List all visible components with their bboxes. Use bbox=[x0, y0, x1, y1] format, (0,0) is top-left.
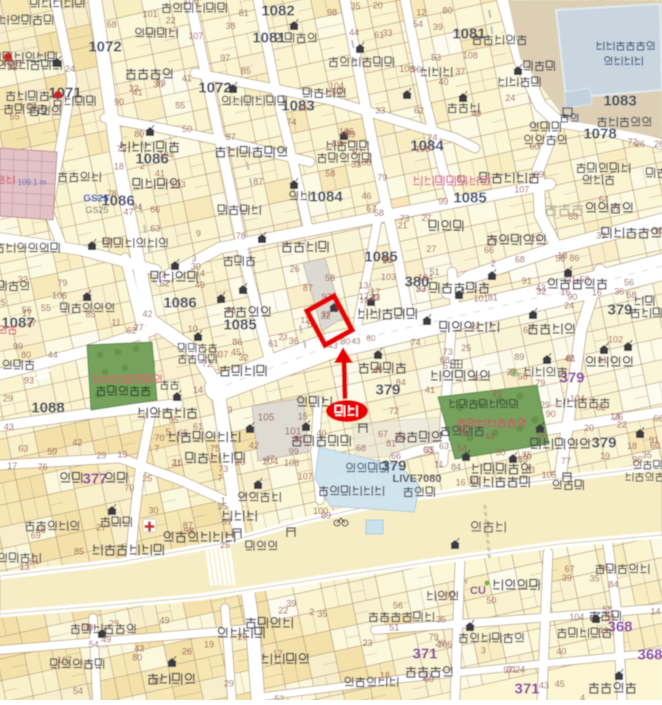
svg-text:74: 74 bbox=[287, 117, 297, 127]
svg-text:76: 76 bbox=[601, 566, 611, 576]
svg-text:45: 45 bbox=[231, 347, 241, 357]
svg-text:73: 73 bbox=[400, 214, 410, 224]
svg-text:25: 25 bbox=[461, 343, 471, 353]
svg-text:18: 18 bbox=[380, 671, 390, 681]
svg-text:99: 99 bbox=[13, 342, 23, 352]
svg-text:68: 68 bbox=[35, 525, 45, 535]
svg-text:18: 18 bbox=[627, 441, 637, 451]
svg-text:61: 61 bbox=[268, 339, 278, 349]
svg-text:53: 53 bbox=[431, 53, 441, 63]
svg-text:49: 49 bbox=[195, 280, 205, 290]
svg-text:50: 50 bbox=[445, 590, 455, 600]
svg-text:31: 31 bbox=[507, 665, 517, 675]
svg-text:73: 73 bbox=[116, 144, 126, 154]
svg-text:83: 83 bbox=[7, 62, 17, 72]
svg-text:72: 72 bbox=[389, 406, 399, 416]
svg-text:25: 25 bbox=[0, 297, 6, 307]
svg-text:9: 9 bbox=[196, 228, 201, 238]
svg-text:35: 35 bbox=[642, 450, 652, 460]
svg-text:106: 106 bbox=[437, 639, 452, 649]
svg-text:20: 20 bbox=[237, 632, 247, 642]
svg-text:98: 98 bbox=[327, 7, 337, 17]
svg-text:64: 64 bbox=[599, 195, 609, 205]
svg-text:75: 75 bbox=[488, 234, 498, 244]
svg-text:GS25: GS25 bbox=[85, 205, 108, 215]
svg-text:34: 34 bbox=[382, 256, 392, 266]
svg-text:33: 33 bbox=[351, 160, 361, 170]
svg-text:82: 82 bbox=[596, 403, 606, 413]
svg-text:1072: 1072 bbox=[88, 38, 121, 55]
svg-text:105: 105 bbox=[542, 470, 557, 480]
svg-text:80: 80 bbox=[442, 6, 452, 16]
svg-text:1072: 1072 bbox=[198, 79, 231, 96]
svg-text:16: 16 bbox=[456, 477, 466, 487]
svg-text:60: 60 bbox=[529, 142, 539, 152]
svg-text:78: 78 bbox=[236, 231, 246, 241]
svg-text:80: 80 bbox=[134, 129, 144, 139]
svg-text:32: 32 bbox=[18, 275, 28, 285]
svg-text:84: 84 bbox=[608, 579, 618, 589]
svg-text:99: 99 bbox=[438, 197, 448, 207]
svg-text:22: 22 bbox=[278, 605, 288, 615]
svg-text:66: 66 bbox=[653, 414, 662, 424]
svg-text:105: 105 bbox=[258, 413, 275, 424]
svg-text:101: 101 bbox=[143, 9, 158, 19]
svg-text:81: 81 bbox=[456, 174, 466, 184]
svg-text:55: 55 bbox=[175, 101, 185, 111]
svg-text:32: 32 bbox=[322, 310, 331, 319]
svg-text:27: 27 bbox=[506, 367, 516, 377]
svg-text:12: 12 bbox=[416, 8, 426, 18]
svg-text:7: 7 bbox=[473, 285, 478, 295]
svg-text:61: 61 bbox=[29, 556, 39, 566]
svg-text:2: 2 bbox=[140, 161, 145, 171]
svg-text:82: 82 bbox=[332, 138, 342, 148]
svg-text:63: 63 bbox=[150, 224, 160, 234]
svg-text:49: 49 bbox=[160, 615, 170, 625]
svg-text:57: 57 bbox=[222, 517, 232, 527]
svg-text:107: 107 bbox=[298, 471, 313, 481]
svg-text:93: 93 bbox=[24, 375, 34, 385]
svg-text:23: 23 bbox=[279, 333, 288, 342]
svg-text:68: 68 bbox=[107, 20, 117, 30]
svg-text:79: 79 bbox=[377, 173, 387, 183]
svg-text:68: 68 bbox=[356, 443, 366, 453]
svg-text:87: 87 bbox=[253, 177, 263, 187]
svg-text:81: 81 bbox=[598, 355, 608, 365]
svg-text:66: 66 bbox=[537, 430, 547, 440]
svg-text:368: 368 bbox=[637, 646, 662, 663]
svg-text:54: 54 bbox=[457, 444, 467, 454]
svg-text:41: 41 bbox=[425, 385, 435, 395]
svg-text:18: 18 bbox=[114, 162, 124, 172]
svg-text:60: 60 bbox=[523, 325, 533, 335]
svg-text:44: 44 bbox=[48, 350, 58, 360]
svg-text:44: 44 bbox=[485, 432, 495, 442]
svg-text:GS25: GS25 bbox=[83, 194, 109, 205]
svg-text:66: 66 bbox=[150, 204, 160, 214]
svg-text:57: 57 bbox=[443, 361, 453, 371]
svg-text:58: 58 bbox=[517, 372, 527, 382]
svg-text:39: 39 bbox=[562, 573, 572, 583]
svg-text:39: 39 bbox=[534, 169, 544, 179]
svg-text:29: 29 bbox=[96, 451, 106, 461]
svg-text:104: 104 bbox=[262, 457, 279, 468]
svg-text:38: 38 bbox=[225, 21, 235, 31]
svg-text:90: 90 bbox=[114, 97, 124, 107]
svg-text:65: 65 bbox=[178, 428, 188, 438]
svg-text:35: 35 bbox=[590, 574, 600, 584]
svg-text:1081: 1081 bbox=[252, 29, 285, 46]
svg-text:79: 79 bbox=[57, 278, 67, 288]
svg-text:80: 80 bbox=[132, 652, 142, 662]
svg-text:7: 7 bbox=[217, 473, 222, 483]
svg-text:CU: CU bbox=[470, 585, 486, 597]
svg-text:14: 14 bbox=[651, 606, 661, 616]
svg-text:29: 29 bbox=[224, 679, 234, 689]
svg-text:49: 49 bbox=[492, 389, 502, 399]
svg-text:42: 42 bbox=[249, 441, 259, 451]
svg-text:62: 62 bbox=[414, 106, 424, 116]
svg-text:72: 72 bbox=[202, 359, 212, 369]
svg-text:36: 36 bbox=[289, 336, 299, 346]
svg-text:1085: 1085 bbox=[364, 248, 397, 265]
svg-text:1078: 1078 bbox=[583, 125, 616, 142]
svg-text:26: 26 bbox=[220, 540, 230, 550]
svg-text:99: 99 bbox=[83, 623, 93, 633]
svg-text:50: 50 bbox=[182, 124, 192, 134]
svg-text:19: 19 bbox=[600, 451, 610, 461]
svg-text:60: 60 bbox=[103, 236, 113, 246]
svg-text:80: 80 bbox=[367, 334, 376, 343]
svg-text:37: 37 bbox=[455, 66, 465, 76]
svg-text:16: 16 bbox=[592, 288, 602, 298]
svg-text:100: 100 bbox=[313, 506, 328, 516]
svg-text:13: 13 bbox=[20, 562, 30, 572]
svg-text:107: 107 bbox=[188, 31, 203, 41]
svg-text:27: 27 bbox=[426, 244, 436, 254]
svg-text:69: 69 bbox=[424, 674, 434, 684]
svg-text:94: 94 bbox=[132, 202, 142, 212]
svg-text:44: 44 bbox=[349, 27, 359, 37]
svg-text:21: 21 bbox=[171, 458, 181, 468]
svg-text:91: 91 bbox=[522, 276, 532, 286]
svg-text:18: 18 bbox=[457, 424, 467, 434]
svg-text:32: 32 bbox=[537, 287, 547, 297]
svg-text:27: 27 bbox=[26, 318, 36, 328]
svg-text:1085: 1085 bbox=[453, 189, 486, 206]
svg-text:81: 81 bbox=[566, 353, 576, 363]
svg-text:1088: 1088 bbox=[31, 399, 64, 416]
svg-text:43: 43 bbox=[4, 422, 14, 432]
svg-text:51: 51 bbox=[389, 622, 399, 632]
svg-text:52: 52 bbox=[274, 694, 284, 700]
svg-text:39: 39 bbox=[433, 22, 443, 32]
svg-text:54: 54 bbox=[413, 19, 423, 29]
svg-text:85: 85 bbox=[85, 310, 95, 320]
svg-text:84: 84 bbox=[396, 378, 406, 388]
svg-text:1082: 1082 bbox=[261, 2, 294, 19]
svg-text:29: 29 bbox=[540, 400, 550, 410]
svg-text:24: 24 bbox=[65, 64, 75, 74]
svg-text:45: 45 bbox=[555, 679, 565, 689]
svg-text:46: 46 bbox=[361, 191, 371, 201]
svg-text:2: 2 bbox=[309, 607, 314, 617]
svg-text:50: 50 bbox=[486, 596, 496, 606]
svg-text:58: 58 bbox=[325, 168, 335, 178]
svg-text:58: 58 bbox=[325, 273, 335, 283]
svg-text:108: 108 bbox=[415, 144, 430, 154]
svg-text:74: 74 bbox=[411, 338, 421, 348]
svg-text:31: 31 bbox=[566, 275, 576, 285]
svg-text:26: 26 bbox=[235, 457, 245, 467]
svg-text:379: 379 bbox=[607, 301, 632, 318]
svg-text:14: 14 bbox=[610, 412, 620, 422]
svg-text:68: 68 bbox=[515, 255, 525, 265]
svg-text:84: 84 bbox=[451, 462, 461, 472]
svg-text:86: 86 bbox=[569, 253, 579, 263]
svg-text:27: 27 bbox=[96, 522, 106, 532]
svg-text:56: 56 bbox=[393, 601, 403, 611]
svg-text:10: 10 bbox=[360, 296, 369, 305]
svg-text:53: 53 bbox=[416, 284, 426, 294]
svg-text:4: 4 bbox=[580, 693, 585, 700]
svg-text:58: 58 bbox=[626, 290, 636, 300]
svg-text:11: 11 bbox=[434, 460, 443, 470]
svg-text:1085: 1085 bbox=[223, 316, 256, 333]
svg-text:40: 40 bbox=[439, 77, 449, 87]
svg-text:56: 56 bbox=[624, 277, 634, 287]
svg-text:76: 76 bbox=[38, 462, 48, 472]
svg-text:58: 58 bbox=[579, 275, 589, 285]
svg-text:107: 107 bbox=[57, 655, 72, 665]
svg-text:69: 69 bbox=[471, 477, 481, 487]
svg-text:43: 43 bbox=[539, 681, 549, 691]
svg-text:103: 103 bbox=[381, 272, 396, 282]
svg-text:13: 13 bbox=[358, 281, 368, 291]
svg-text:17: 17 bbox=[273, 649, 283, 659]
svg-text:46: 46 bbox=[373, 364, 383, 374]
svg-text:55: 55 bbox=[41, 303, 51, 313]
svg-text:1083: 1083 bbox=[603, 92, 636, 109]
svg-text:99: 99 bbox=[289, 447, 299, 457]
svg-text:81: 81 bbox=[488, 293, 498, 303]
svg-text:20: 20 bbox=[584, 423, 594, 433]
svg-text:27: 27 bbox=[422, 213, 432, 223]
svg-text:35: 35 bbox=[217, 502, 227, 512]
svg-text:103: 103 bbox=[171, 180, 186, 190]
svg-text:377: 377 bbox=[82, 470, 107, 487]
svg-text:87: 87 bbox=[226, 132, 236, 142]
svg-text:14: 14 bbox=[193, 385, 203, 395]
svg-text:75: 75 bbox=[522, 450, 532, 460]
svg-text:3: 3 bbox=[227, 405, 232, 415]
svg-text:24: 24 bbox=[515, 665, 525, 675]
svg-text:14: 14 bbox=[654, 226, 662, 236]
svg-text:63: 63 bbox=[423, 445, 433, 455]
svg-text:1084: 1084 bbox=[309, 188, 343, 205]
svg-text:33: 33 bbox=[375, 106, 385, 116]
svg-text:50: 50 bbox=[293, 435, 305, 446]
svg-text:87: 87 bbox=[303, 283, 313, 293]
svg-text:24: 24 bbox=[427, 133, 437, 143]
svg-text:70: 70 bbox=[27, 102, 37, 112]
svg-text:7: 7 bbox=[161, 270, 166, 280]
svg-text:84: 84 bbox=[396, 433, 406, 443]
svg-text:104: 104 bbox=[569, 612, 584, 622]
svg-text:1086: 1086 bbox=[163, 294, 196, 311]
svg-text:90: 90 bbox=[546, 409, 556, 419]
svg-text:78: 78 bbox=[107, 189, 117, 199]
svg-text:23: 23 bbox=[525, 465, 535, 475]
svg-text:30: 30 bbox=[496, 448, 506, 458]
svg-text:26: 26 bbox=[290, 264, 300, 274]
svg-text:37: 37 bbox=[218, 349, 228, 359]
svg-text:17: 17 bbox=[7, 461, 17, 471]
svg-text:70: 70 bbox=[155, 433, 165, 443]
svg-text:42: 42 bbox=[142, 309, 152, 319]
svg-text:89: 89 bbox=[514, 352, 524, 362]
svg-text:66: 66 bbox=[484, 245, 494, 255]
svg-text:379: 379 bbox=[591, 434, 616, 451]
svg-text:63: 63 bbox=[18, 443, 28, 453]
svg-text:22: 22 bbox=[166, 15, 176, 25]
svg-text:67: 67 bbox=[378, 429, 388, 439]
svg-text:67: 67 bbox=[565, 564, 575, 574]
svg-text:22: 22 bbox=[470, 321, 480, 331]
svg-text:75: 75 bbox=[210, 443, 220, 453]
svg-text:23: 23 bbox=[363, 638, 373, 648]
svg-text:86: 86 bbox=[232, 337, 242, 347]
svg-text:30: 30 bbox=[148, 506, 158, 516]
svg-text:54: 54 bbox=[89, 639, 99, 649]
svg-text:83: 83 bbox=[568, 212, 578, 222]
svg-text:108: 108 bbox=[463, 51, 478, 61]
svg-text:3: 3 bbox=[481, 645, 486, 655]
svg-text:104: 104 bbox=[159, 150, 174, 160]
svg-text:59: 59 bbox=[47, 446, 57, 456]
svg-text:54: 54 bbox=[73, 686, 83, 696]
svg-text:13: 13 bbox=[118, 449, 128, 459]
svg-text:66: 66 bbox=[391, 451, 401, 461]
svg-text:35: 35 bbox=[436, 614, 446, 624]
svg-text:19: 19 bbox=[204, 639, 214, 649]
svg-text:77: 77 bbox=[561, 456, 571, 466]
svg-text:70: 70 bbox=[124, 483, 134, 493]
svg-text:95: 95 bbox=[168, 415, 178, 425]
svg-text:371: 371 bbox=[412, 645, 437, 662]
svg-text:96: 96 bbox=[298, 103, 308, 113]
svg-text:102: 102 bbox=[608, 334, 623, 344]
svg-text:10: 10 bbox=[188, 324, 198, 334]
svg-text:26: 26 bbox=[182, 646, 192, 656]
svg-text:107: 107 bbox=[514, 184, 529, 194]
svg-text:106: 106 bbox=[339, 127, 354, 137]
svg-text:85: 85 bbox=[74, 546, 84, 556]
svg-text:29: 29 bbox=[3, 393, 13, 403]
svg-text:62: 62 bbox=[127, 326, 137, 336]
svg-text:61: 61 bbox=[193, 421, 203, 431]
svg-text:63: 63 bbox=[439, 441, 449, 451]
svg-text:97: 97 bbox=[220, 53, 230, 63]
svg-text:Y: Y bbox=[464, 580, 468, 586]
svg-text:87: 87 bbox=[183, 521, 193, 531]
svg-text:15: 15 bbox=[298, 411, 308, 421]
svg-text:41: 41 bbox=[133, 87, 143, 97]
svg-text:7: 7 bbox=[154, 444, 159, 454]
svg-text:108: 108 bbox=[399, 64, 414, 74]
svg-text:104: 104 bbox=[570, 394, 585, 404]
svg-text:LIVE7080: LIVE7080 bbox=[393, 473, 442, 485]
svg-text:2: 2 bbox=[491, 259, 496, 269]
svg-text:4: 4 bbox=[200, 269, 205, 279]
svg-text:62: 62 bbox=[352, 147, 362, 157]
svg-text:100: 100 bbox=[184, 0, 199, 7]
svg-text:42: 42 bbox=[72, 437, 82, 447]
svg-text:11: 11 bbox=[112, 318, 121, 328]
svg-text:43: 43 bbox=[473, 373, 483, 383]
svg-text:24: 24 bbox=[505, 93, 515, 103]
svg-text:109.1 m: 109.1 m bbox=[18, 178, 47, 187]
svg-text:40: 40 bbox=[556, 646, 566, 656]
svg-text:20: 20 bbox=[373, 0, 383, 10]
svg-text:35: 35 bbox=[350, 1, 360, 11]
svg-text:25: 25 bbox=[142, 474, 152, 484]
svg-text:59: 59 bbox=[605, 612, 615, 622]
svg-text:26: 26 bbox=[654, 139, 662, 149]
svg-text:33: 33 bbox=[596, 231, 606, 241]
svg-text:49: 49 bbox=[101, 635, 111, 645]
svg-text:81: 81 bbox=[239, 8, 249, 18]
svg-text:43: 43 bbox=[134, 644, 144, 654]
svg-text:41: 41 bbox=[155, 169, 165, 179]
svg-text:106: 106 bbox=[52, 291, 67, 301]
svg-text:35: 35 bbox=[317, 609, 327, 619]
svg-text:49: 49 bbox=[152, 676, 162, 686]
svg-text:85: 85 bbox=[241, 66, 251, 76]
svg-text:17: 17 bbox=[370, 287, 380, 297]
svg-text:58: 58 bbox=[374, 208, 384, 218]
svg-text:5: 5 bbox=[165, 427, 170, 437]
svg-text:49: 49 bbox=[471, 108, 481, 118]
svg-text:98: 98 bbox=[226, 305, 236, 315]
svg-text:55: 55 bbox=[10, 111, 20, 121]
svg-text:81: 81 bbox=[386, 439, 396, 449]
svg-text:41: 41 bbox=[182, 73, 192, 83]
svg-text:18: 18 bbox=[557, 251, 567, 261]
svg-text:108: 108 bbox=[284, 458, 299, 468]
svg-text:43: 43 bbox=[352, 337, 361, 346]
svg-text:23: 23 bbox=[531, 234, 541, 244]
svg-text:36: 36 bbox=[614, 287, 624, 297]
svg-text:16: 16 bbox=[561, 287, 571, 297]
svg-text:79: 79 bbox=[535, 378, 545, 388]
svg-text:104: 104 bbox=[329, 81, 344, 91]
svg-text:51: 51 bbox=[430, 267, 440, 277]
svg-text:101: 101 bbox=[473, 294, 488, 304]
svg-text:87: 87 bbox=[610, 204, 620, 214]
svg-text:83: 83 bbox=[156, 78, 166, 88]
svg-text:49: 49 bbox=[598, 625, 608, 635]
svg-text:40: 40 bbox=[316, 429, 326, 439]
svg-text:26: 26 bbox=[635, 139, 645, 149]
svg-text:371: 371 bbox=[514, 680, 539, 697]
svg-text:91: 91 bbox=[649, 435, 659, 445]
svg-text:33: 33 bbox=[382, 28, 392, 38]
svg-text:29: 29 bbox=[109, 619, 119, 629]
